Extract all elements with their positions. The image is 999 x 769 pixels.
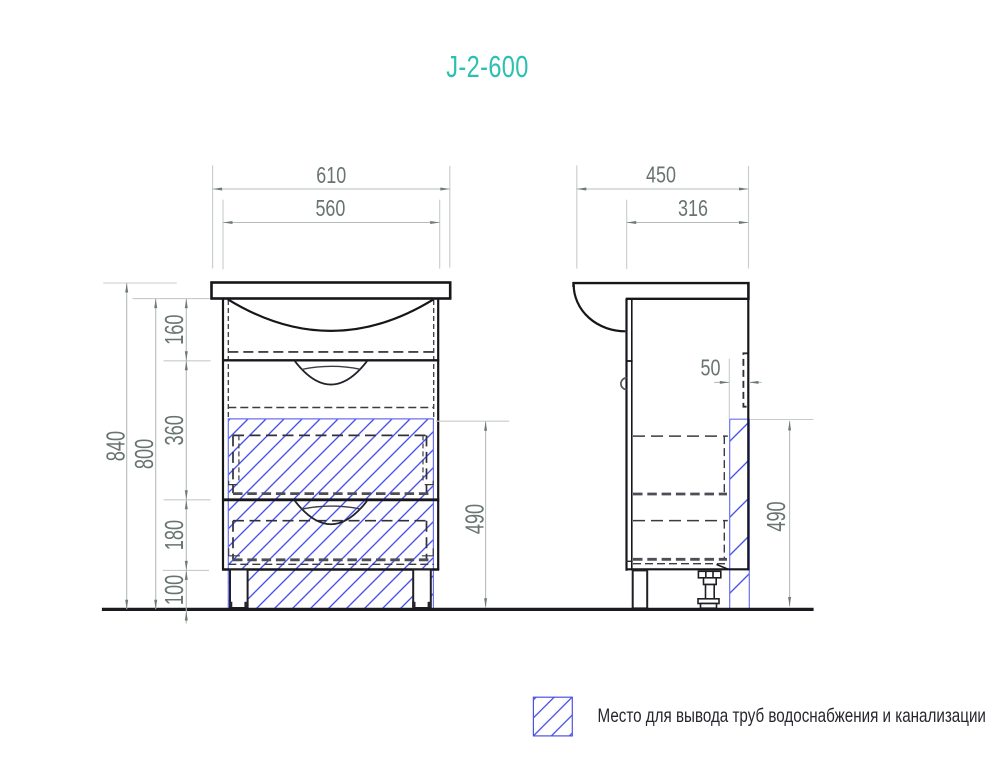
svg-text:840: 840 [101, 431, 130, 461]
svg-text:490: 490 [460, 504, 489, 534]
svg-text:100: 100 [160, 575, 189, 605]
svg-text:490: 490 [762, 501, 791, 531]
svg-text:316: 316 [678, 196, 708, 222]
svg-text:800: 800 [130, 439, 159, 469]
svg-text:50: 50 [701, 355, 721, 381]
svg-text:450: 450 [646, 162, 676, 188]
svg-text:180: 180 [160, 520, 189, 550]
svg-text:360: 360 [160, 415, 189, 445]
svg-text:610: 610 [316, 163, 346, 189]
svg-text:160: 160 [160, 315, 189, 345]
svg-text:J-2-600: J-2-600 [446, 49, 528, 84]
svg-text:Место для вывода труб водоснаб: Место для вывода труб водоснабжения и ка… [598, 704, 986, 726]
svg-text:560: 560 [315, 196, 345, 222]
